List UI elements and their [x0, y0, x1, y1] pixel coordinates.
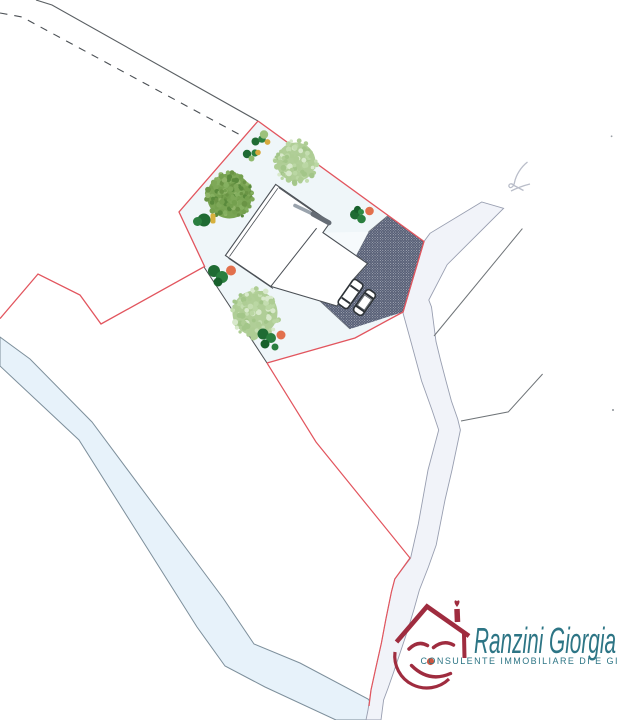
svg-text:Ranzini Giorgia: Ranzini Giorgia: [474, 620, 616, 661]
svg-text:CONSULENTE IMMOBILIARE DI E GI: CONSULENTE IMMOBILIARE DI E GI: [421, 656, 618, 666]
